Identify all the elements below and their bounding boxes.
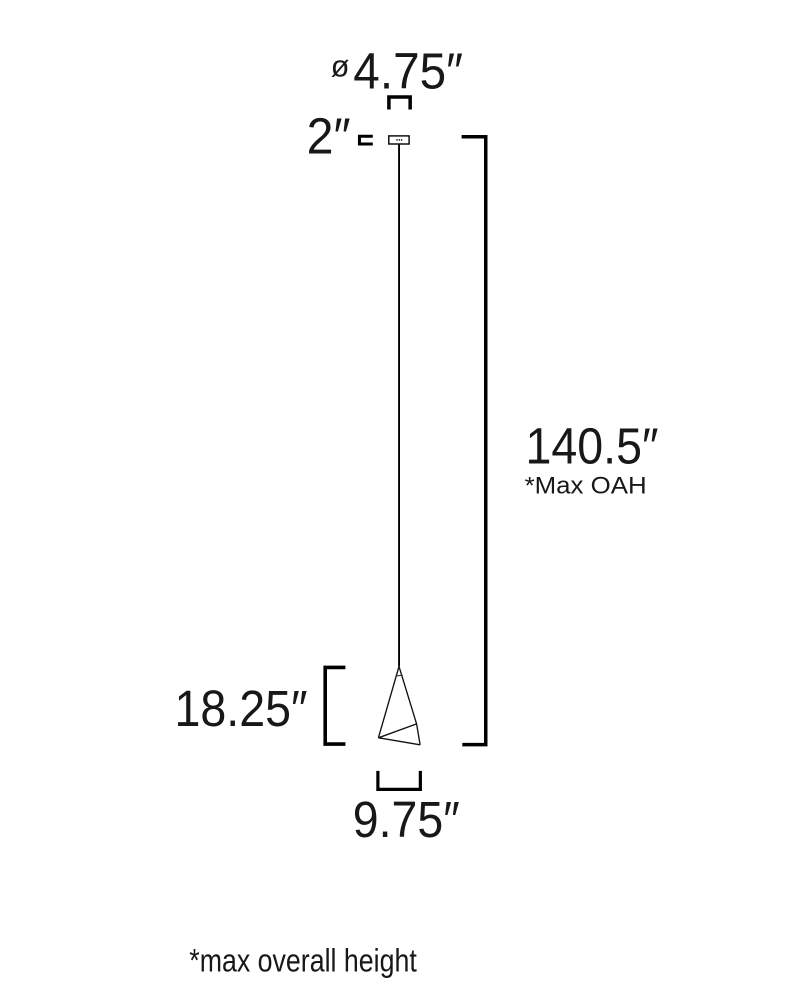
svg-text:*Max OAH: *Max OAH bbox=[525, 473, 647, 499]
svg-text:*max overall height: *max overall height bbox=[189, 943, 417, 979]
svg-text:2″: 2″ bbox=[307, 107, 351, 164]
svg-text:9.75″: 9.75″ bbox=[353, 791, 460, 848]
svg-text:ø: ø bbox=[331, 49, 350, 83]
svg-text:18.25″: 18.25″ bbox=[175, 680, 308, 737]
svg-text:140.5″: 140.5″ bbox=[526, 418, 659, 475]
svg-text:4.75″: 4.75″ bbox=[353, 43, 463, 100]
